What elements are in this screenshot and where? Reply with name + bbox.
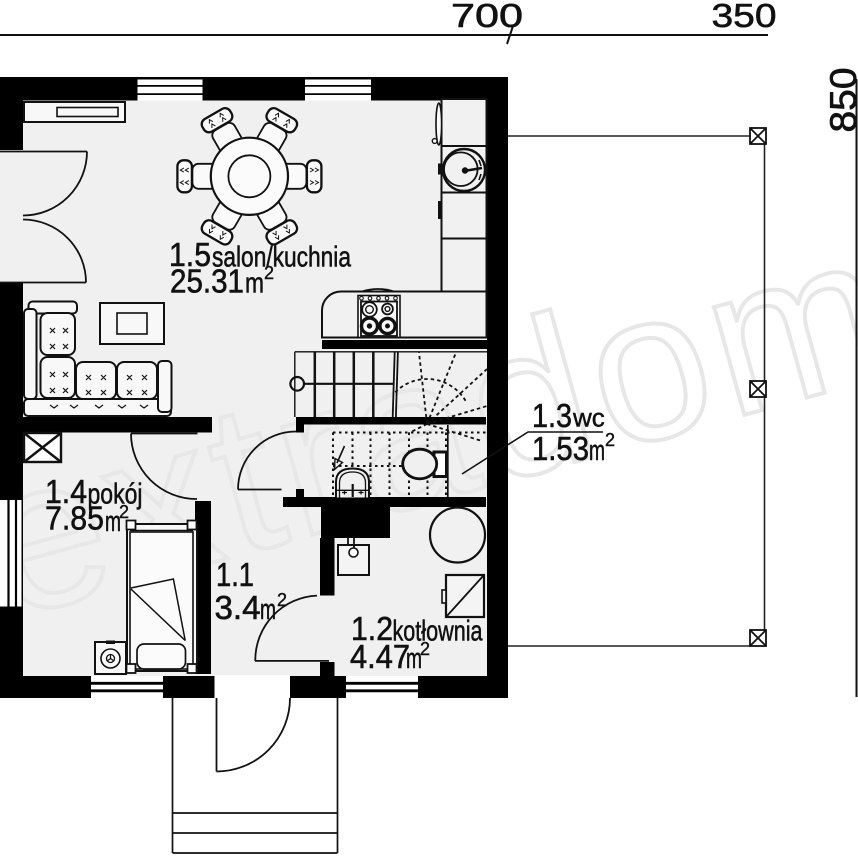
- svg-text:3.4: 3.4: [215, 589, 261, 626]
- svg-text:850: 850: [823, 68, 858, 133]
- svg-text:m: m: [589, 435, 605, 467]
- svg-text:2: 2: [264, 263, 274, 283]
- svg-text:4.47: 4.47: [350, 638, 410, 675]
- svg-text:7.85: 7.85: [45, 500, 104, 537]
- svg-text:2: 2: [277, 590, 287, 610]
- svg-text:25.31: 25.31: [170, 263, 244, 300]
- svg-text:1.53: 1.53: [532, 430, 589, 467]
- svg-text:m: m: [260, 594, 276, 626]
- svg-text:m: m: [245, 268, 264, 300]
- svg-text:700: 700: [451, 0, 523, 34]
- svg-text:wc: wc: [572, 403, 605, 433]
- svg-text:350: 350: [712, 0, 777, 34]
- svg-text:1.3: 1.3: [532, 397, 572, 434]
- svg-text:2: 2: [119, 502, 129, 522]
- svg-text:2: 2: [420, 639, 430, 659]
- svg-text:2: 2: [605, 430, 615, 450]
- svg-text:1.1: 1.1: [216, 556, 254, 593]
